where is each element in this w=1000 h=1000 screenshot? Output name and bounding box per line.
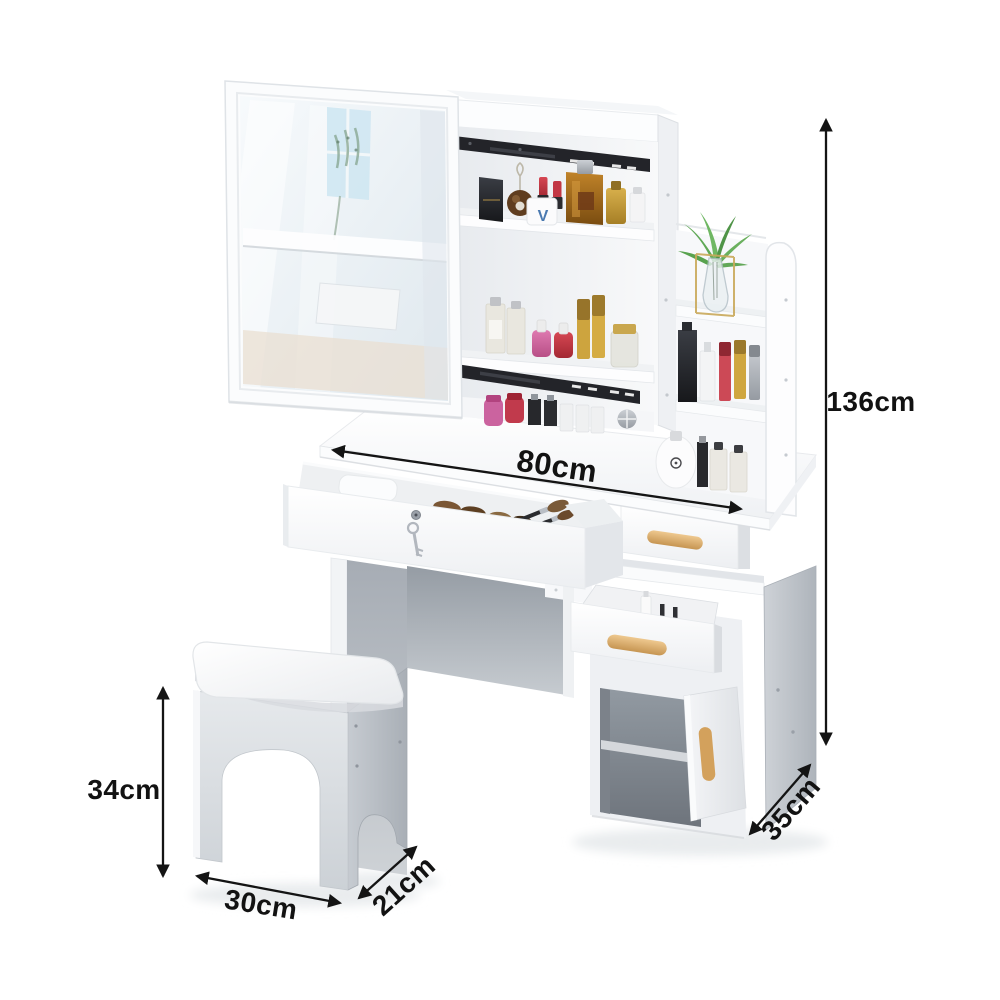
product-dimension-image: V: [0, 0, 1000, 1000]
cabinet-door: [684, 687, 746, 821]
side-tower: [656, 212, 796, 516]
product-illustration: V: [0, 0, 1000, 1000]
sliding-mirror: [215, 81, 462, 418]
dimension-label-stool-height: 34cm: [87, 776, 160, 804]
stool-front-panel: [196, 691, 348, 890]
jar-monogram-text: V: [538, 208, 549, 225]
under-table-shadow: [407, 566, 566, 695]
dimension-label-height: 136cm: [826, 388, 915, 416]
cabinet-right-panel: [658, 115, 678, 433]
tower-curved-panel: [766, 243, 796, 516]
mirror-cabinet: V: [446, 90, 678, 433]
